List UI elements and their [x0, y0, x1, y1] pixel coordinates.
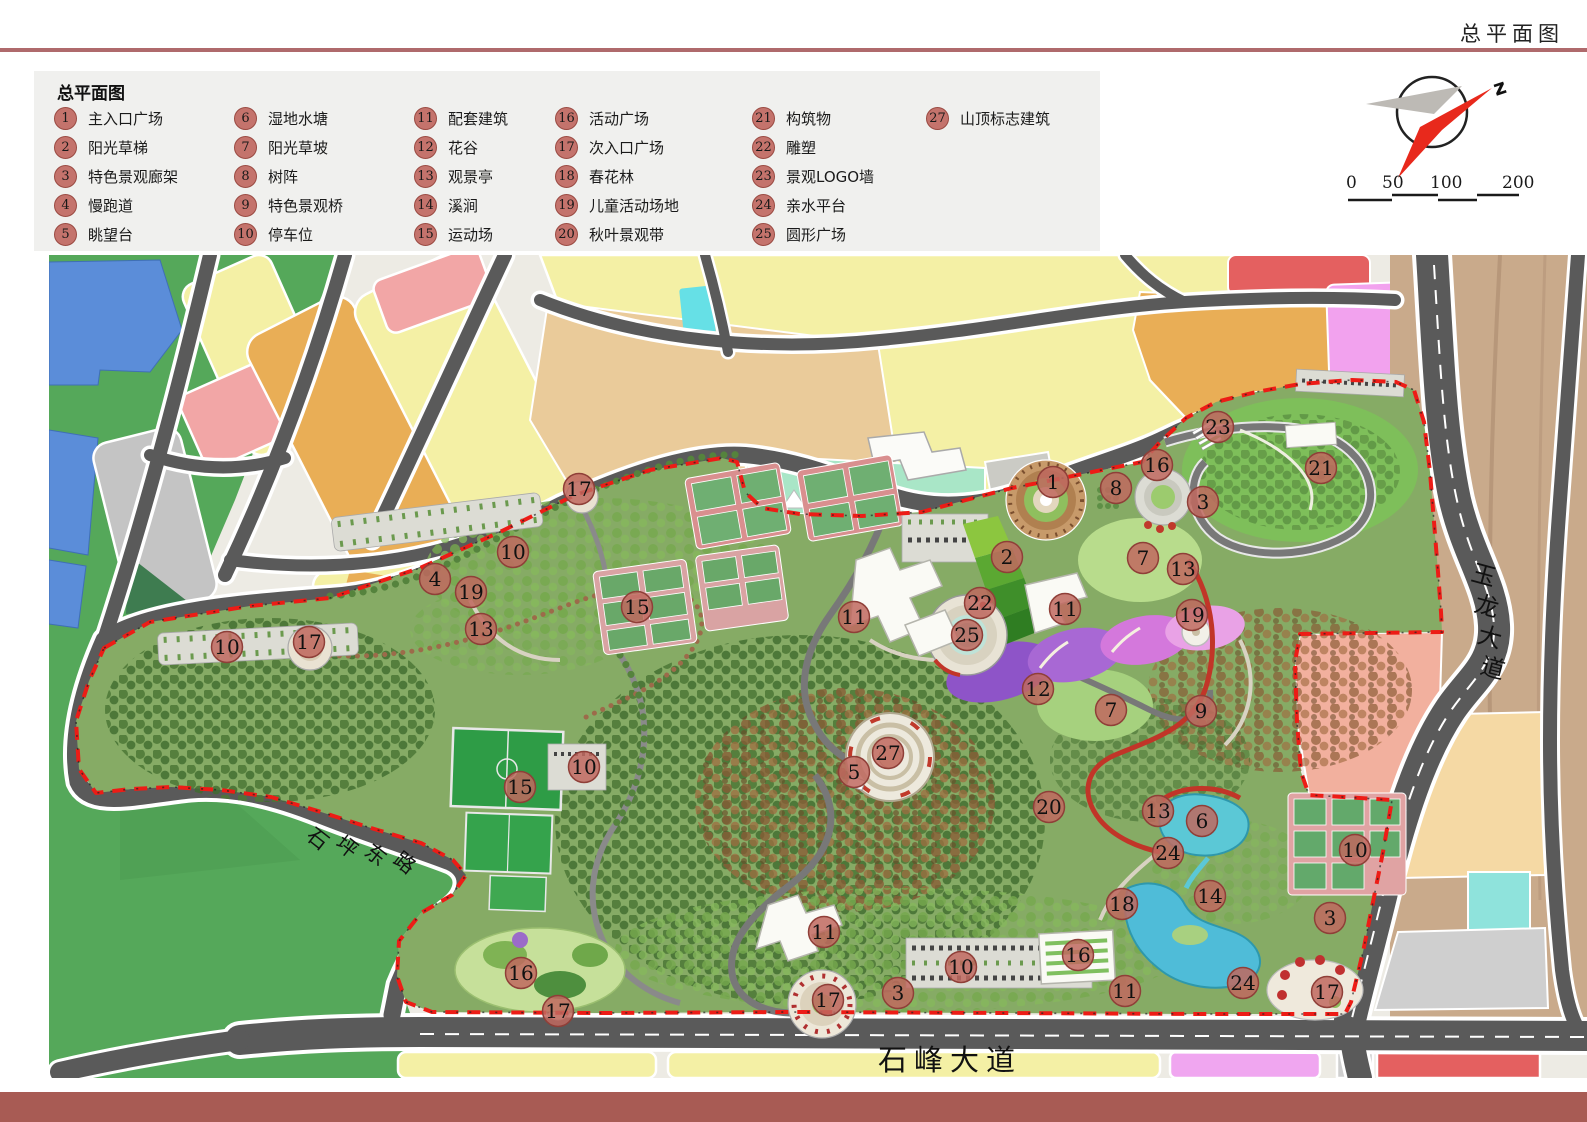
- map-marker: 17: [813, 985, 844, 1016]
- map-marker: 15: [622, 592, 653, 623]
- map-marker: 10: [946, 952, 977, 983]
- legend-item-label: 停车位: [268, 224, 313, 245]
- legend-panel: 总平面图 1主入口广场2阳光草梯3特色景观廊架4慢跑道5眺望台6湿地水塘7阳光草…: [34, 71, 1100, 251]
- svg-text:27: 27: [875, 741, 900, 765]
- legend-column: 6湿地水塘7阳光草坡8树阵9特色景观桥10停车位: [234, 104, 343, 249]
- legend-item-number: 6: [234, 107, 257, 130]
- legend-item-number: 11: [414, 107, 437, 130]
- svg-text:15: 15: [624, 595, 649, 619]
- legend-item-number: 19: [555, 194, 578, 217]
- legend-item-label: 景观LOGO墙: [786, 166, 874, 187]
- legend-item-label: 配套建筑: [448, 108, 508, 129]
- scale-tick-labels: 050100200: [1346, 173, 1534, 193]
- svg-text:18: 18: [1109, 892, 1134, 916]
- legend-item-label: 慢跑道: [88, 195, 133, 216]
- legend-item: 5眺望台: [54, 220, 178, 249]
- scale-bar-segments: [1348, 195, 1519, 200]
- page-title: 总平面图: [1460, 18, 1587, 48]
- legend-item-number: 10: [234, 223, 257, 246]
- svg-text:13: 13: [468, 617, 493, 641]
- legend-item-label: 运动场: [448, 224, 493, 245]
- legend-item: 9特色景观桥: [234, 191, 343, 220]
- map-marker: 15: [505, 772, 536, 803]
- legend-item-label: 湿地水塘: [268, 108, 328, 129]
- legend-item-label: 活动广场: [589, 108, 649, 129]
- map-marker: 17: [543, 996, 574, 1027]
- legend-item: 15运动场: [414, 220, 508, 249]
- legend-item-number: 5: [54, 223, 77, 246]
- legend-item-label: 秋叶景观带: [589, 224, 664, 245]
- legend-item-label: 儿童活动场地: [589, 195, 679, 216]
- legend-item: 21构筑物: [752, 104, 874, 133]
- legend-item-label: 次入口广场: [589, 137, 664, 158]
- site-plan-map: 石坪东路石峰大道玉龙大道 171041913101715112225218163…: [49, 255, 1587, 1078]
- road-label-char: 石: [878, 1043, 907, 1077]
- legend-item: 3特色景观廊架: [54, 162, 178, 191]
- map-marker: 25: [952, 620, 983, 651]
- road-label-char: 大: [950, 1043, 979, 1077]
- legend-title: 总平面图: [57, 79, 125, 104]
- map-marker: 2: [992, 542, 1023, 573]
- svg-text:11: 11: [811, 920, 836, 944]
- svg-text:17: 17: [815, 988, 840, 1012]
- svg-text:3: 3: [1197, 490, 1210, 514]
- legend-item-label: 树阵: [268, 166, 298, 187]
- map-marker: 13: [1168, 554, 1199, 585]
- map-marker: 13: [466, 614, 497, 645]
- legend-item: 20秋叶景观带: [555, 220, 679, 249]
- compass-north-label: z: [1490, 74, 1509, 101]
- svg-text:16: 16: [1144, 453, 1169, 477]
- map-marker: 11: [1110, 976, 1141, 1007]
- svg-text:11: 11: [841, 605, 866, 629]
- svg-text:16: 16: [508, 961, 533, 985]
- svg-text:19: 19: [1179, 603, 1204, 627]
- svg-text:14: 14: [1197, 884, 1222, 908]
- legend-item-number: 21: [752, 107, 775, 130]
- map-marker: 9: [1186, 696, 1217, 727]
- legend-column: 1主入口广场2阳光草梯3特色景观廊架4慢跑道5眺望台: [54, 104, 178, 249]
- legend-item-number: 16: [555, 107, 578, 130]
- legend-item: 23景观LOGO墙: [752, 162, 874, 191]
- legend-column: 16活动广场17次入口广场18春花林19儿童活动场地20秋叶景观带: [555, 104, 679, 249]
- svg-text:13: 13: [1145, 799, 1170, 823]
- legend-item-label: 山顶标志建筑: [960, 108, 1050, 129]
- legend-item-label: 溪涧: [448, 195, 478, 216]
- map-marker: 11: [1050, 594, 1081, 625]
- svg-text:13: 13: [1170, 557, 1195, 581]
- svg-text:5: 5: [848, 760, 861, 784]
- map-marker: 7: [1128, 543, 1159, 574]
- map-marker: 13: [1143, 796, 1174, 827]
- map-marker: 14: [1195, 881, 1226, 912]
- legend-item-number: 23: [752, 165, 775, 188]
- legend-item: 17次入口广场: [555, 133, 679, 162]
- svg-text:7: 7: [1105, 698, 1118, 722]
- map-marker: 17: [1312, 977, 1343, 1008]
- svg-text:17: 17: [566, 477, 591, 501]
- map-marker: 24: [1228, 968, 1259, 999]
- legend-item: 19儿童活动场地: [555, 191, 679, 220]
- legend-item-number: 3: [54, 165, 77, 188]
- legend-item-number: 27: [926, 107, 949, 130]
- legend-item: 8树阵: [234, 162, 343, 191]
- legend-item-label: 特色景观廊架: [88, 166, 178, 187]
- svg-text:4: 4: [429, 567, 442, 591]
- scale-tick-label: 200: [1502, 173, 1534, 193]
- site-plan-svg: 石坪东路石峰大道玉龙大道 171041913101715112225218163…: [49, 255, 1587, 1078]
- svg-text:19: 19: [458, 580, 483, 604]
- svg-text:16: 16: [1065, 943, 1090, 967]
- map-marker: 10: [498, 537, 529, 568]
- svg-text:10: 10: [214, 635, 239, 659]
- svg-text:22: 22: [967, 591, 992, 615]
- svg-text:15: 15: [507, 775, 532, 799]
- legend-item: 10停车位: [234, 220, 343, 249]
- map-marker: 10: [569, 752, 600, 783]
- legend-column: 27山顶标志建筑: [926, 104, 1050, 133]
- map-marker: 18: [1107, 889, 1138, 920]
- map-marker: 16: [1142, 450, 1173, 481]
- legend-item-label: 主入口广场: [88, 108, 163, 129]
- svg-text:10: 10: [571, 755, 596, 779]
- svg-text:1: 1: [1047, 470, 1060, 494]
- map-marker: 4: [420, 564, 451, 595]
- legend-item-label: 阳光草坡: [268, 137, 328, 158]
- legend-item-number: 17: [555, 136, 578, 159]
- map-marker: 11: [809, 917, 840, 948]
- legend-item-number: 20: [555, 223, 578, 246]
- svg-text:3: 3: [892, 981, 905, 1005]
- svg-text:2: 2: [1001, 545, 1014, 569]
- svg-text:10: 10: [1342, 838, 1367, 862]
- svg-text:11: 11: [1112, 979, 1137, 1003]
- legend-item-number: 18: [555, 165, 578, 188]
- scale-tick-label: 0: [1346, 173, 1357, 193]
- svg-text:8: 8: [1110, 476, 1123, 500]
- svg-text:12: 12: [1025, 677, 1050, 701]
- map-marker: 3: [883, 978, 914, 1009]
- legend-item: 16活动广场: [555, 104, 679, 133]
- legend-item-number: 9: [234, 194, 257, 217]
- legend-item-label: 花谷: [448, 137, 478, 158]
- legend-item: 24亲水平台: [752, 191, 874, 220]
- legend-item-label: 观景亭: [448, 166, 493, 187]
- scale-tick-label: 100: [1430, 173, 1462, 193]
- map-marker: 17: [294, 627, 325, 658]
- svg-text:10: 10: [948, 955, 973, 979]
- legend-item-number: 15: [414, 223, 437, 246]
- legend-item: 4慢跑道: [54, 191, 178, 220]
- map-marker: 8: [1101, 473, 1132, 504]
- svg-text:6: 6: [1196, 809, 1209, 833]
- svg-text:24: 24: [1155, 841, 1180, 865]
- legend-item: 1主入口广场: [54, 104, 178, 133]
- svg-text:25: 25: [954, 623, 979, 647]
- map-marker: 16: [506, 958, 537, 989]
- svg-text:7: 7: [1137, 546, 1150, 570]
- legend-item: 25圆形广场: [752, 220, 874, 249]
- legend-item-label: 构筑物: [786, 108, 831, 129]
- map-marker: 7: [1096, 695, 1127, 726]
- legend-item-label: 阳光草梯: [88, 137, 148, 158]
- map-marker: 19: [456, 577, 487, 608]
- legend-item: 12花谷: [414, 133, 508, 162]
- legend-item-number: 1: [54, 107, 77, 130]
- map-marker: 21: [1306, 453, 1337, 484]
- map-marker: 20: [1034, 792, 1065, 823]
- legend-column: 21构筑物22雕塑23景观LOGO墙24亲水平台25圆形广场: [752, 104, 874, 249]
- road-label-char: 峰: [914, 1043, 943, 1077]
- header-rule: [0, 48, 1587, 52]
- scale-tick-label: 50: [1382, 173, 1404, 193]
- footer-band: [0, 1092, 1587, 1122]
- legend-item: 7阳光草坡: [234, 133, 343, 162]
- legend-item-number: 8: [234, 165, 257, 188]
- legend-item: 22雕塑: [752, 133, 874, 162]
- legend-item-number: 14: [414, 194, 437, 217]
- map-marker: 1: [1038, 467, 1069, 498]
- map-marker: 17: [564, 474, 595, 505]
- legend-column: 11配套建筑12花谷13观景亭14溪涧15运动场: [414, 104, 508, 249]
- svg-text:10: 10: [500, 540, 525, 564]
- map-marker: 3: [1188, 487, 1219, 518]
- legend-item-number: 12: [414, 136, 437, 159]
- legend-item: 11配套建筑: [414, 104, 508, 133]
- map-marker: 10: [1340, 835, 1371, 866]
- road-label-char: 道: [986, 1043, 1015, 1077]
- svg-text:11: 11: [1052, 597, 1077, 621]
- map-marker: 19: [1177, 600, 1208, 631]
- legend-item: 27山顶标志建筑: [926, 104, 1050, 133]
- legend-item-label: 眺望台: [88, 224, 133, 245]
- legend-item-number: 7: [234, 136, 257, 159]
- legend-item: 2阳光草梯: [54, 133, 178, 162]
- legend-item: 6湿地水塘: [234, 104, 343, 133]
- legend-item-label: 雕塑: [786, 137, 816, 158]
- legend-item-number: 4: [54, 194, 77, 217]
- map-marker: 12: [1023, 674, 1054, 705]
- legend-item-number: 25: [752, 223, 775, 246]
- map-marker: 3: [1315, 903, 1346, 934]
- svg-text:17: 17: [545, 999, 570, 1023]
- map-marker: 27: [873, 738, 904, 769]
- map-marker: 22: [965, 588, 996, 619]
- svg-text:24: 24: [1230, 971, 1255, 995]
- legend-item-label: 春花林: [589, 166, 634, 187]
- svg-text:17: 17: [296, 630, 321, 654]
- legend-item-label: 亲水平台: [786, 195, 846, 216]
- legend-item: 14溪涧: [414, 191, 508, 220]
- map-marker: 23: [1203, 412, 1234, 443]
- legend-item-label: 圆形广场: [786, 224, 846, 245]
- svg-text:3: 3: [1324, 906, 1337, 930]
- map-marker: 6: [1187, 806, 1218, 837]
- map-marker: 24: [1153, 838, 1184, 869]
- legend-item-number: 13: [414, 165, 437, 188]
- map-marker: 11: [839, 602, 870, 633]
- legend-item-label: 特色景观桥: [268, 195, 343, 216]
- svg-text:9: 9: [1195, 699, 1208, 723]
- svg-text:20: 20: [1036, 795, 1061, 819]
- svg-text:17: 17: [1314, 980, 1339, 1004]
- legend-item: 13观景亭: [414, 162, 508, 191]
- legend-item: 18春花林: [555, 162, 679, 191]
- svg-text:21: 21: [1308, 456, 1333, 480]
- legend-item-number: 24: [752, 194, 775, 217]
- scale-bar: 050100200: [1325, 164, 1540, 209]
- map-marker: 5: [839, 757, 870, 788]
- legend-item-number: 22: [752, 136, 775, 159]
- legend-item-number: 2: [54, 136, 77, 159]
- compass-west-wing: [1366, 86, 1462, 114]
- map-marker: 16: [1063, 940, 1094, 971]
- map-marker: 10: [212, 632, 243, 663]
- svg-text:23: 23: [1205, 415, 1230, 439]
